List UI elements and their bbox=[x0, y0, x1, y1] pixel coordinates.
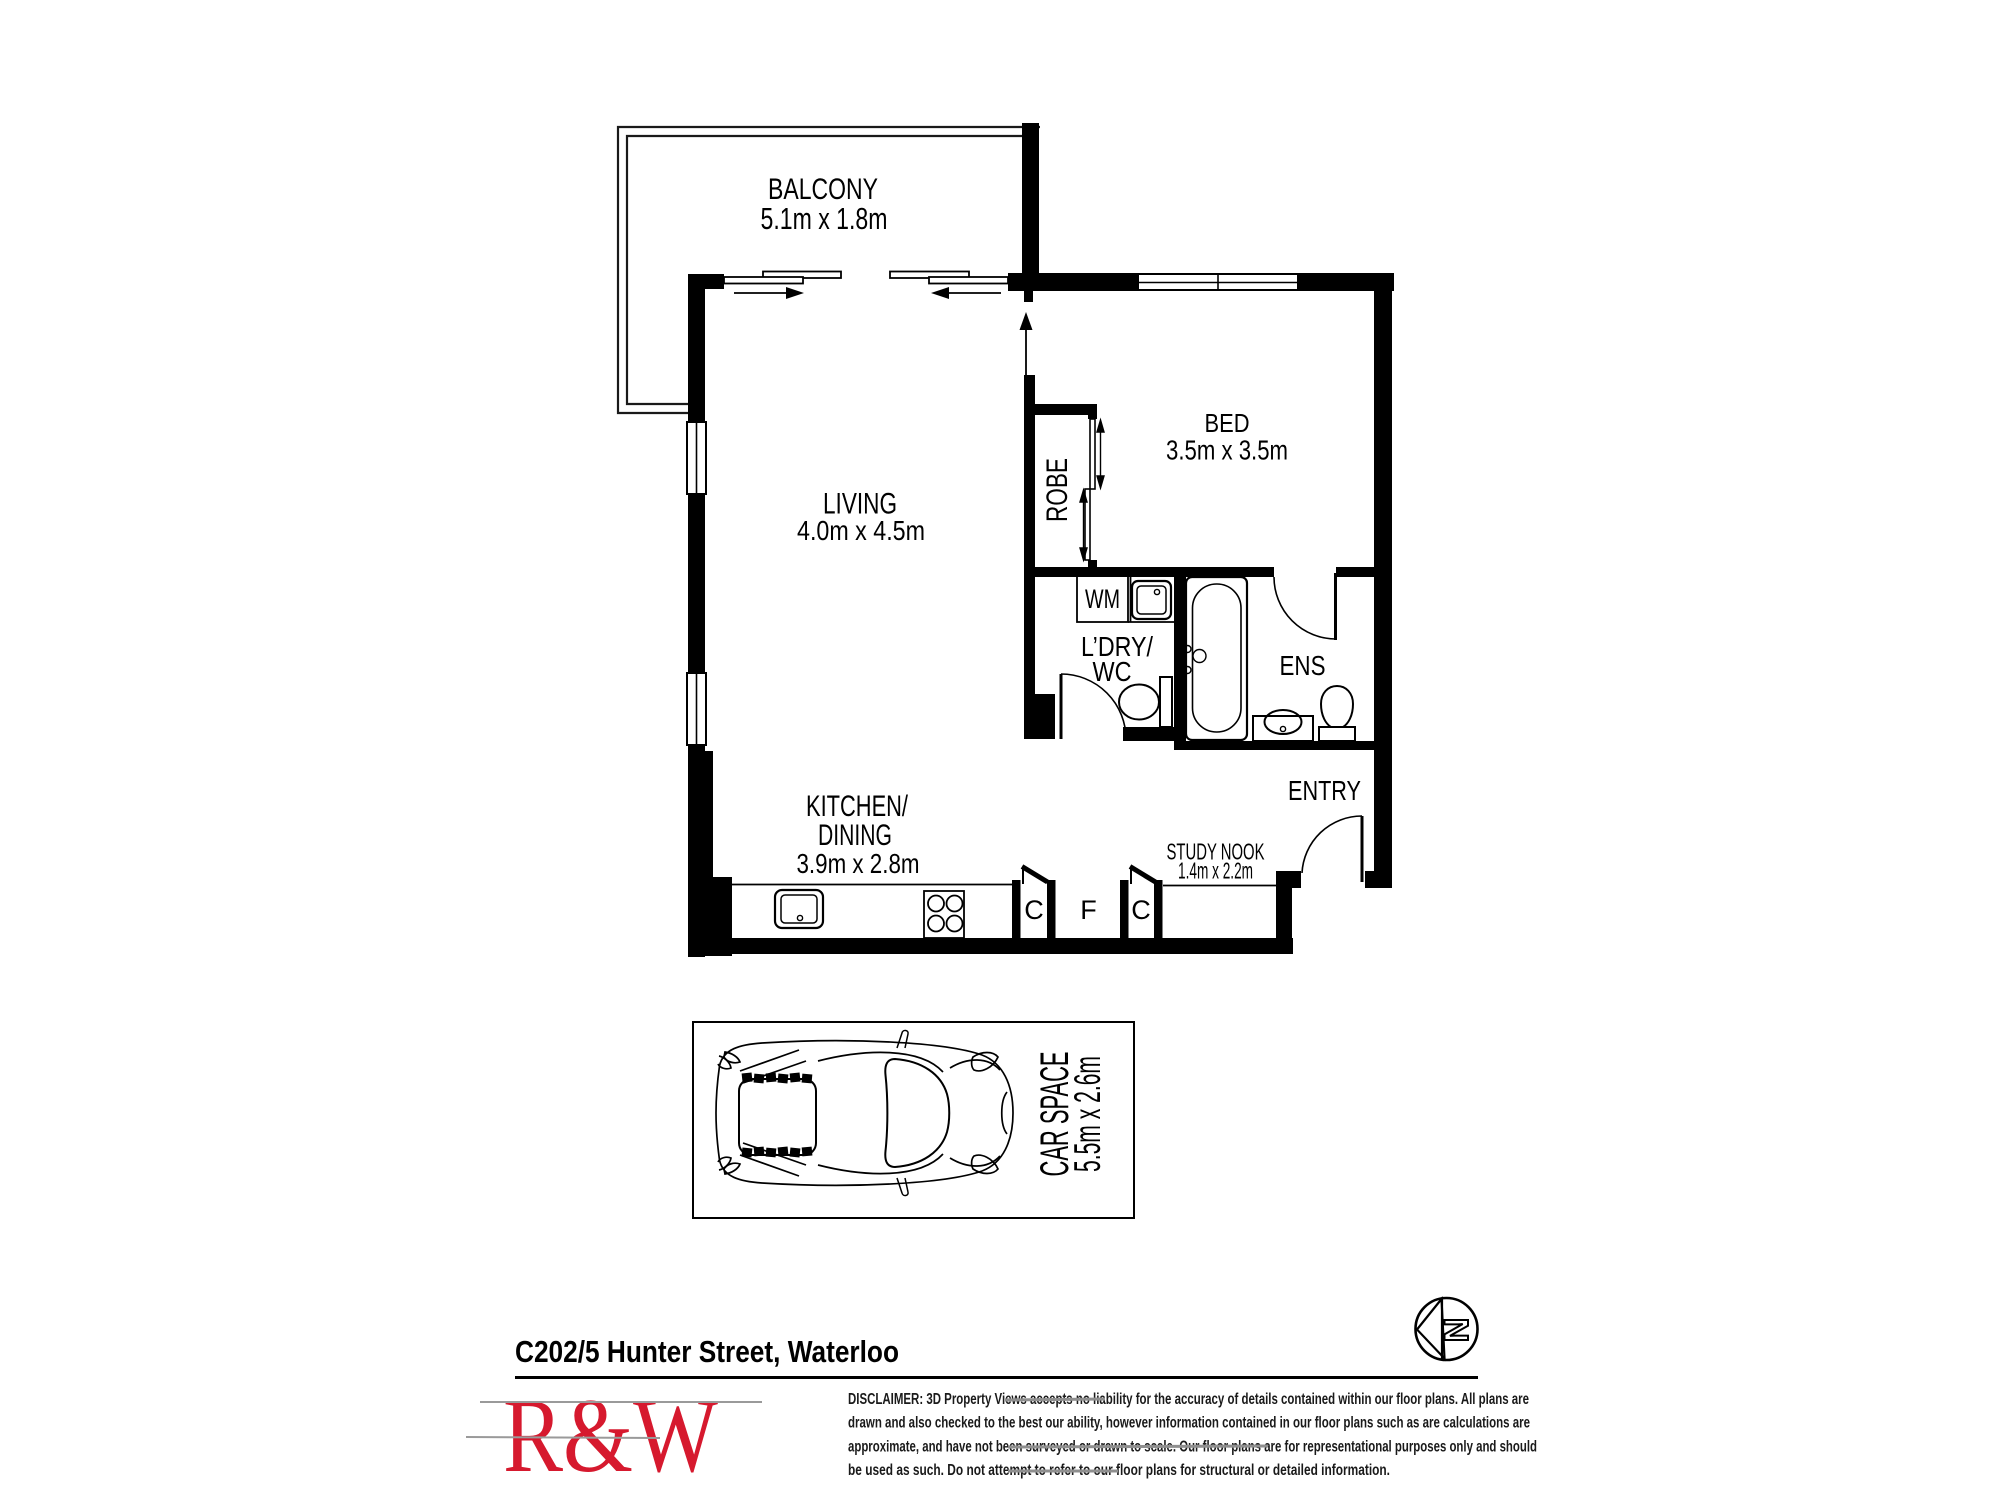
svg-text:WC: WC bbox=[1093, 656, 1132, 687]
svg-text:4.0m x 4.5m: 4.0m x 4.5m bbox=[797, 515, 925, 546]
svg-text:DISCLAIMER: 3D Property Views: DISCLAIMER: 3D Property Views accepts no… bbox=[848, 1391, 1529, 1408]
svg-text:5.5m x 2.6m: 5.5m x 2.6m bbox=[1067, 1056, 1108, 1172]
svg-text:C: C bbox=[1131, 895, 1151, 925]
svg-text:WM: WM bbox=[1085, 584, 1120, 614]
svg-text:C: C bbox=[1024, 895, 1044, 925]
svg-text:N: N bbox=[1438, 1318, 1476, 1343]
svg-text:3.5m x 3.5m: 3.5m x 3.5m bbox=[1166, 435, 1288, 466]
svg-text:5.1m x 1.8m: 5.1m x 1.8m bbox=[761, 201, 888, 236]
svg-text:1.4m x 2.2m: 1.4m x 2.2m bbox=[1178, 858, 1253, 884]
svg-text:R&W: R&W bbox=[503, 1377, 718, 1494]
svg-text:be used as such. Do not attemp: be used as such. Do not attempt to refer… bbox=[848, 1462, 1390, 1479]
svg-text:ENS: ENS bbox=[1280, 650, 1326, 681]
svg-text:drawn and also checked to the: drawn and also checked to the best our a… bbox=[848, 1415, 1530, 1432]
svg-text:ROBE: ROBE bbox=[1041, 458, 1074, 522]
svg-text:C202/5 Hunter Street, Waterloo: C202/5 Hunter Street, Waterloo bbox=[515, 1334, 899, 1369]
svg-text:ENTRY: ENTRY bbox=[1288, 775, 1361, 806]
svg-text:BED: BED bbox=[1205, 408, 1250, 438]
svg-text:F: F bbox=[1080, 895, 1097, 925]
svg-text:3.9m x 2.8m: 3.9m x 2.8m bbox=[797, 848, 920, 879]
